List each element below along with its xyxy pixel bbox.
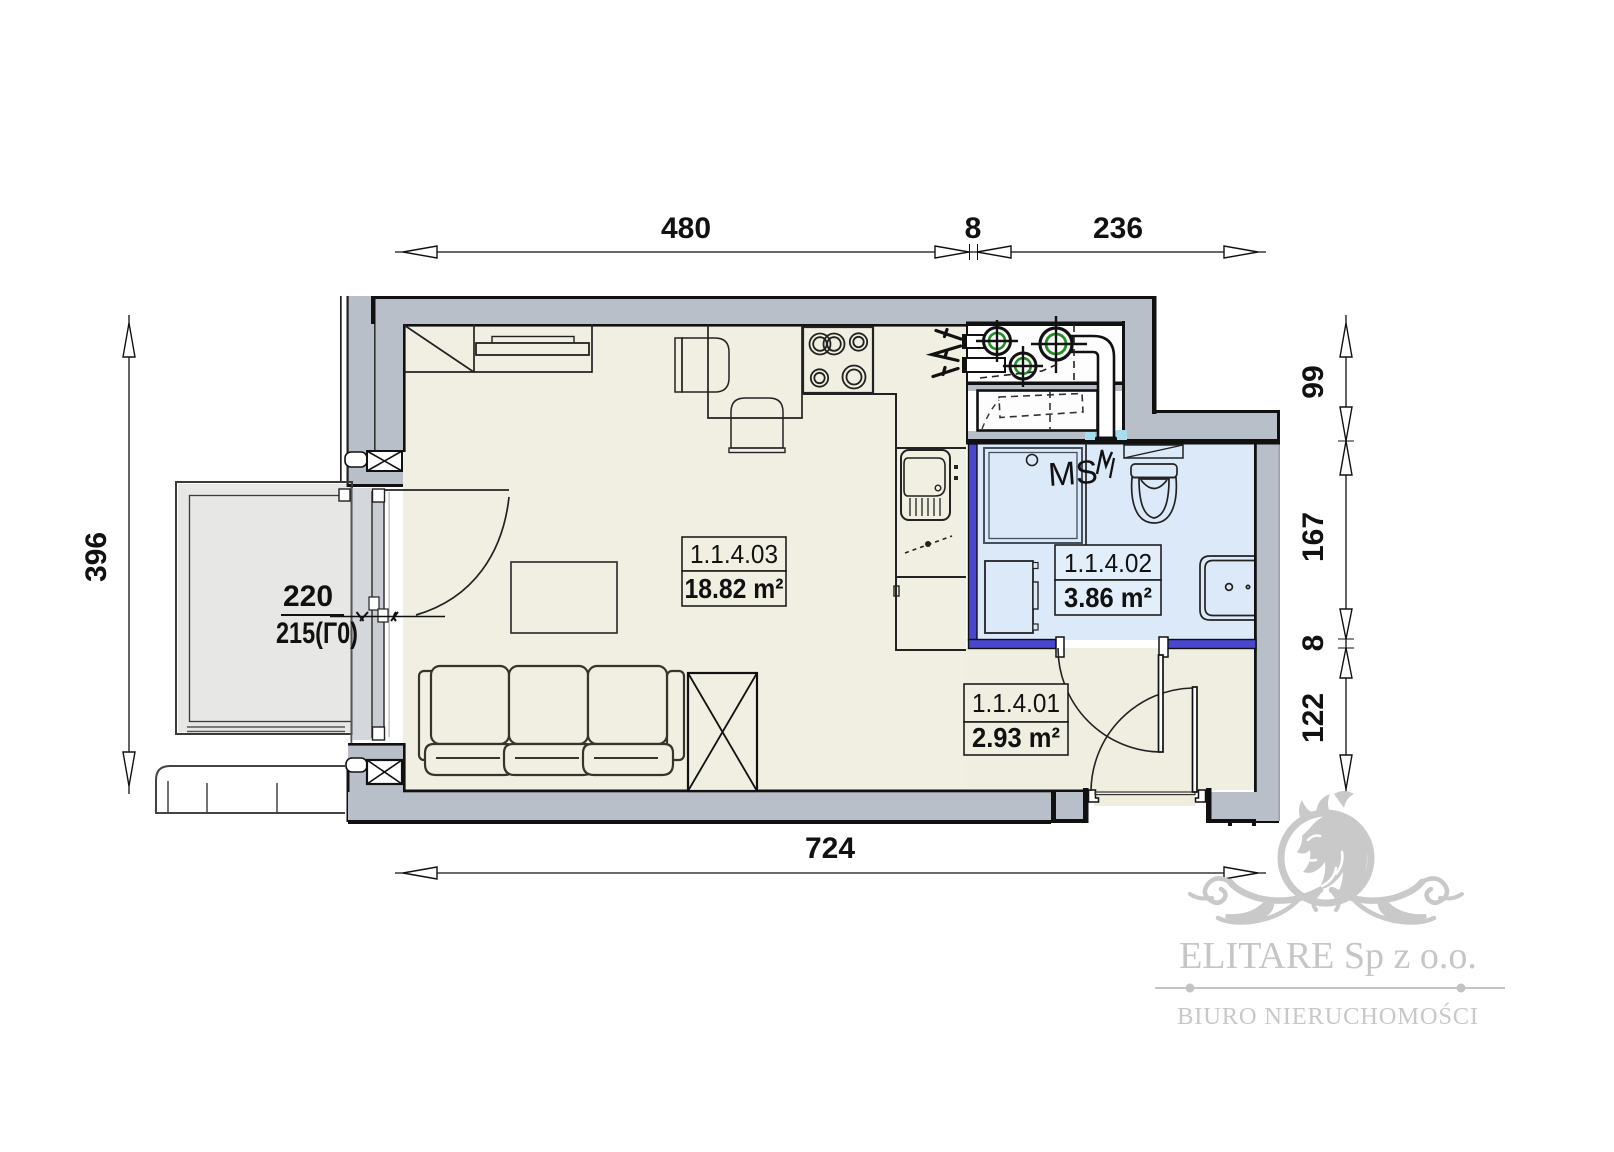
svg-text:1.1.4.03: 1.1.4.03 [690, 539, 778, 569]
svg-text:724: 724 [805, 832, 855, 865]
svg-text:BIURO NIERUCHOMOŚCI: BIURO NIERUCHOMOŚCI [1177, 1002, 1479, 1030]
svg-text:220: 220 [283, 580, 333, 613]
svg-text:ELITARE Sp z o.o.: ELITARE Sp z o.o. [1179, 935, 1477, 977]
svg-text:MS: MS [1047, 453, 1099, 493]
svg-text:1.1.4.01: 1.1.4.01 [972, 688, 1060, 718]
svg-text:396: 396 [80, 532, 113, 582]
svg-text:236: 236 [1093, 212, 1143, 245]
svg-text:480: 480 [661, 212, 711, 245]
svg-text:167: 167 [1297, 512, 1330, 562]
svg-text:122: 122 [1297, 693, 1330, 743]
svg-text:2.93 m²: 2.93 m² [972, 722, 1060, 753]
svg-text:215(Γ0): 215(Γ0) [276, 617, 358, 650]
svg-text:8: 8 [965, 212, 982, 245]
svg-text:3.86 m²: 3.86 m² [1064, 582, 1152, 613]
svg-text:18.82 m²: 18.82 m² [685, 573, 784, 604]
svg-text:8: 8 [1297, 635, 1330, 652]
svg-text:99: 99 [1297, 365, 1330, 398]
svg-text:1.1.4.02: 1.1.4.02 [1064, 548, 1152, 578]
